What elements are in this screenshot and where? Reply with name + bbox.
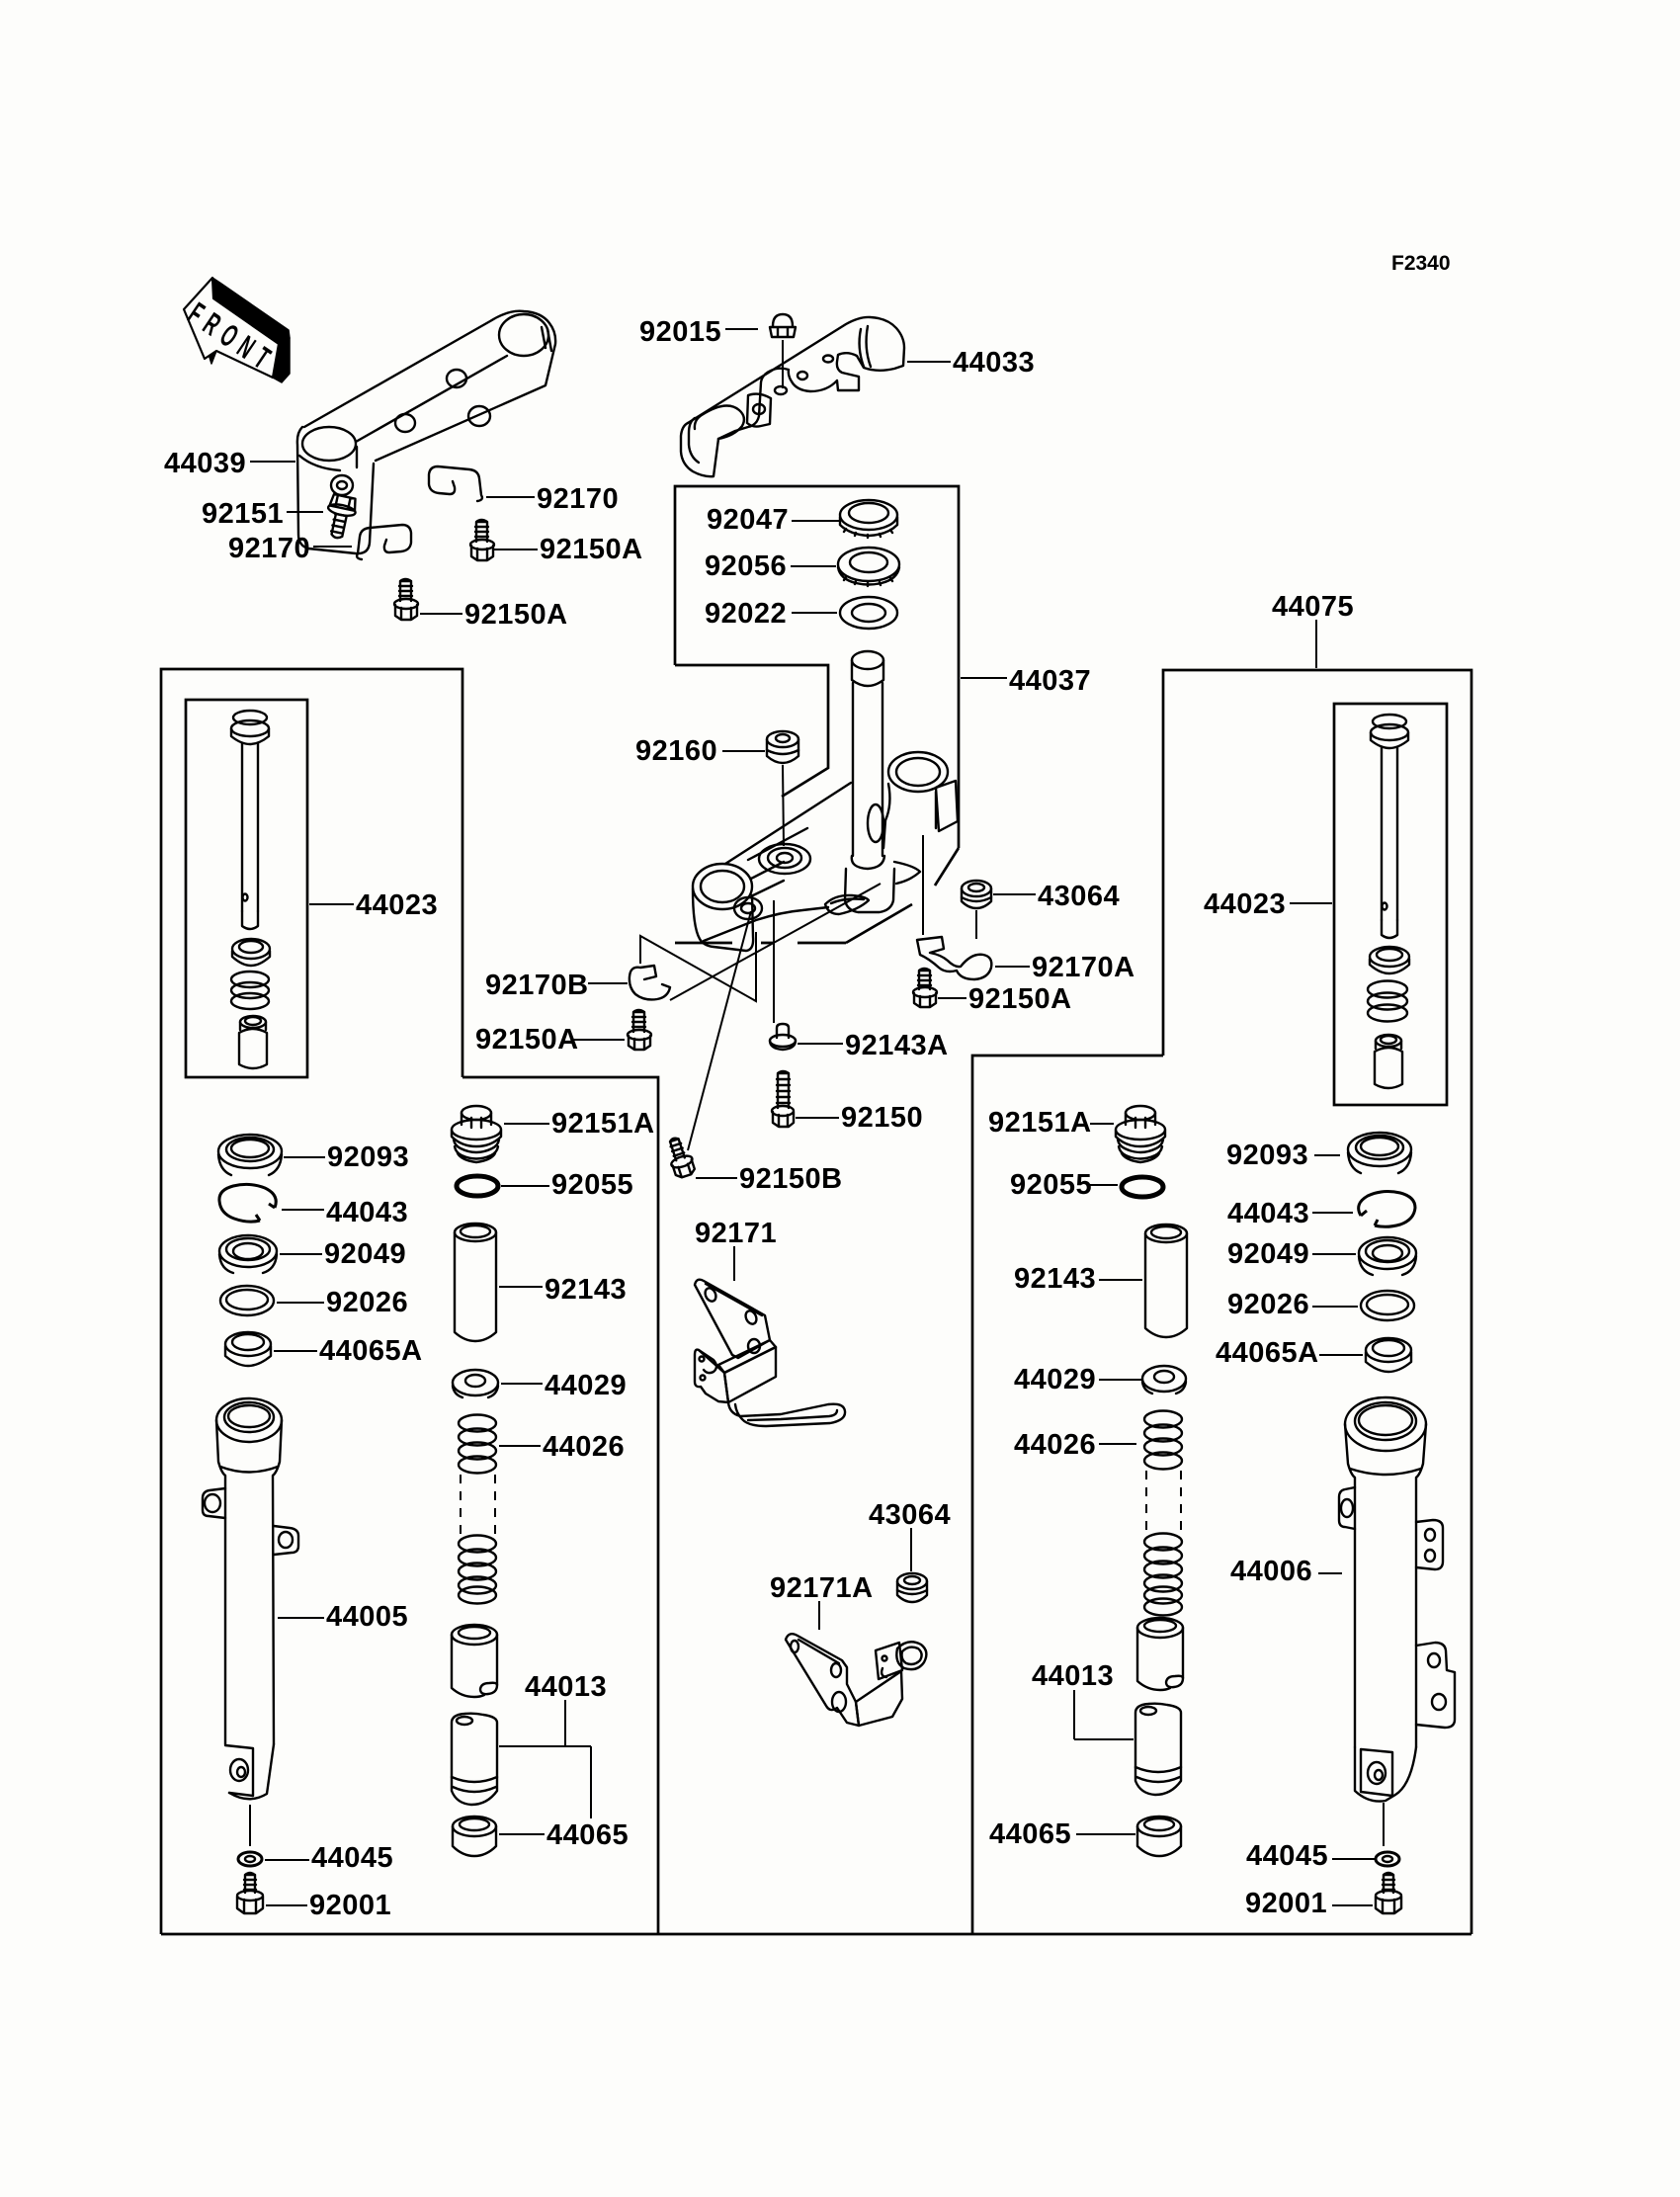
svg-text:92026: 92026 xyxy=(326,1287,408,1318)
svg-text:92001: 92001 xyxy=(1245,1888,1327,1919)
svg-text:92150A: 92150A xyxy=(475,1024,579,1056)
svg-text:92015: 92015 xyxy=(639,316,721,348)
svg-text:92143: 92143 xyxy=(545,1274,627,1306)
svg-text:92056: 92056 xyxy=(705,550,787,582)
svg-text:92093: 92093 xyxy=(327,1141,409,1173)
svg-text:44026: 44026 xyxy=(543,1431,625,1463)
svg-text:92170: 92170 xyxy=(228,533,310,564)
svg-text:92055: 92055 xyxy=(1010,1169,1092,1201)
svg-text:92093: 92093 xyxy=(1226,1140,1308,1171)
svg-text:92170A: 92170A xyxy=(1032,952,1135,983)
svg-text:92150: 92150 xyxy=(841,1102,923,1134)
svg-text:44043: 44043 xyxy=(326,1197,408,1228)
svg-text:44045: 44045 xyxy=(311,1842,393,1874)
svg-text:92151A: 92151A xyxy=(551,1108,655,1140)
svg-text:44033: 44033 xyxy=(953,347,1035,379)
svg-text:44005: 44005 xyxy=(326,1601,408,1633)
svg-text:44039: 44039 xyxy=(164,448,246,479)
svg-text:44013: 44013 xyxy=(525,1671,607,1703)
svg-text:92049: 92049 xyxy=(324,1238,406,1270)
svg-text:92150B: 92150B xyxy=(739,1163,843,1195)
svg-text:92171: 92171 xyxy=(695,1218,777,1249)
svg-text:92151: 92151 xyxy=(202,498,284,530)
svg-text:44023: 44023 xyxy=(1204,888,1286,920)
svg-text:92055: 92055 xyxy=(551,1169,633,1201)
svg-text:44029: 44029 xyxy=(1014,1364,1096,1395)
svg-text:44006: 44006 xyxy=(1230,1556,1312,1587)
svg-text:44065A: 44065A xyxy=(319,1335,423,1367)
svg-text:92026: 92026 xyxy=(1227,1289,1309,1320)
svg-text:44065A: 44065A xyxy=(1216,1337,1319,1369)
svg-text:44043: 44043 xyxy=(1227,1198,1309,1229)
svg-text:92022: 92022 xyxy=(705,598,787,630)
svg-text:92049: 92049 xyxy=(1227,1238,1309,1270)
svg-text:92150A: 92150A xyxy=(464,599,568,631)
svg-text:44065: 44065 xyxy=(989,1818,1071,1850)
svg-text:43064: 43064 xyxy=(869,1499,951,1531)
svg-text:44075: 44075 xyxy=(1272,591,1354,623)
svg-text:44026: 44026 xyxy=(1014,1429,1096,1461)
svg-text:44023: 44023 xyxy=(356,889,438,921)
svg-text:92151A: 92151A xyxy=(988,1107,1092,1139)
svg-text:44013: 44013 xyxy=(1032,1660,1114,1692)
svg-text:92150A: 92150A xyxy=(968,983,1072,1015)
svg-text:92170: 92170 xyxy=(537,483,619,515)
svg-text:F2340: F2340 xyxy=(1391,252,1451,275)
svg-text:44065: 44065 xyxy=(546,1819,629,1851)
svg-text:92047: 92047 xyxy=(707,504,789,536)
svg-text:92143: 92143 xyxy=(1014,1263,1096,1295)
svg-text:44029: 44029 xyxy=(545,1370,627,1401)
svg-text:44045: 44045 xyxy=(1246,1840,1328,1872)
svg-text:44037: 44037 xyxy=(1009,665,1091,697)
svg-text:92171A: 92171A xyxy=(770,1572,874,1604)
svg-text:92160: 92160 xyxy=(635,735,717,767)
svg-text:92170B: 92170B xyxy=(485,970,589,1001)
svg-text:92001: 92001 xyxy=(309,1890,391,1921)
svg-text:43064: 43064 xyxy=(1038,881,1120,912)
svg-text:92143A: 92143A xyxy=(845,1030,949,1061)
svg-text:92150A: 92150A xyxy=(540,534,643,565)
